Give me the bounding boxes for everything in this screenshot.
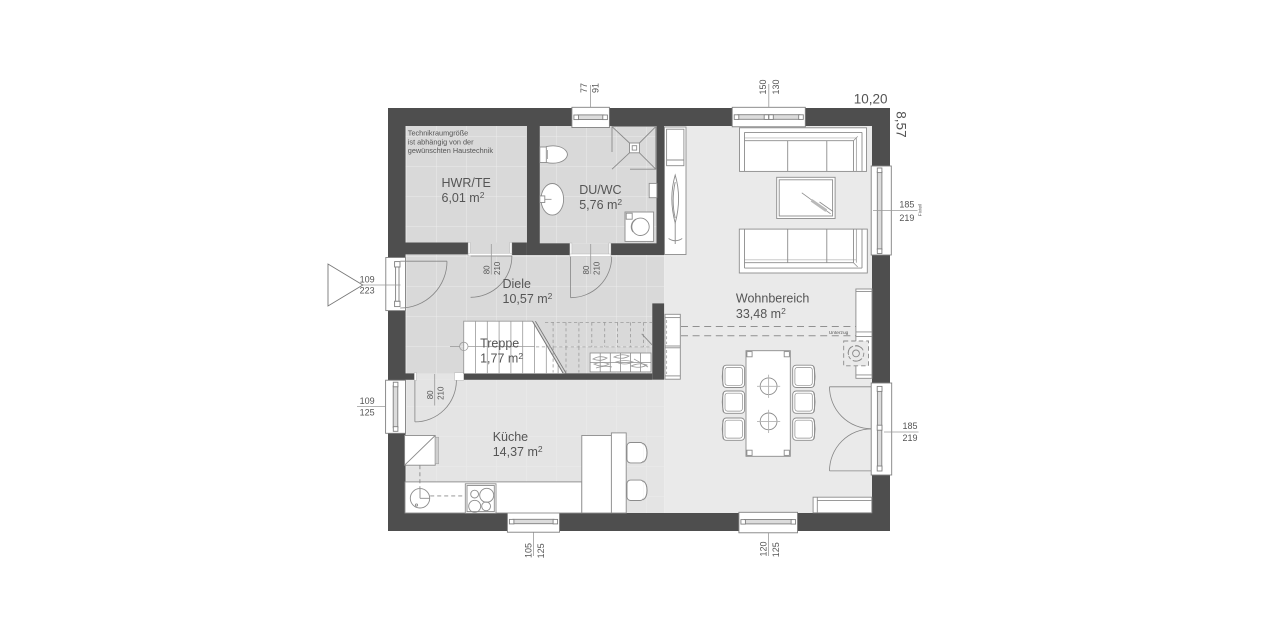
svg-text:130: 130 [771, 79, 781, 94]
svg-text:1,77 m2: 1,77 m2 [480, 351, 523, 366]
svg-text:105: 105 [523, 543, 533, 558]
svg-text:6,01 m2: 6,01 m2 [442, 190, 485, 205]
svg-text:91: 91 [590, 83, 600, 93]
svg-text:120: 120 [759, 541, 769, 556]
svg-text:33,48 m2: 33,48 m2 [736, 306, 786, 321]
svg-text:Unterzug: Unterzug [829, 330, 849, 336]
svg-text:210: 210 [493, 261, 502, 275]
svg-text:ist abhängig von der: ist abhängig von der [408, 137, 474, 146]
svg-text:125: 125 [771, 542, 781, 557]
svg-text:210: 210 [592, 261, 601, 275]
svg-text:Technikraumgröße: Technikraumgröße [408, 128, 468, 137]
svg-text:109: 109 [360, 396, 375, 406]
svg-text:Wohnbereich: Wohnbereich [736, 292, 809, 306]
svg-text:223: 223 [360, 286, 375, 296]
svg-text:HWR/TE: HWR/TE [442, 176, 491, 190]
svg-text:185: 185 [902, 421, 917, 431]
svg-text:Küche: Küche [493, 430, 528, 444]
svg-text:10,20: 10,20 [854, 92, 888, 107]
svg-text:Diele: Diele [503, 277, 532, 291]
svg-text:219: 219 [902, 433, 917, 443]
svg-text:80: 80 [582, 265, 591, 274]
svg-text:77: 77 [579, 83, 589, 93]
svg-text:14,37 m2: 14,37 m2 [493, 444, 543, 459]
svg-text:219: 219 [899, 213, 914, 223]
svg-text:185: 185 [899, 199, 914, 209]
svg-text:5,76 m2: 5,76 m2 [579, 197, 622, 212]
svg-text:DU/WC: DU/WC [579, 183, 621, 197]
svg-text:80: 80 [482, 265, 491, 274]
svg-text:125: 125 [360, 407, 375, 417]
svg-text:gewünschten Haustechnik: gewünschten Haustechnik [408, 146, 494, 155]
svg-text:150: 150 [758, 79, 768, 94]
svg-text:8,57: 8,57 [894, 111, 909, 137]
svg-text:125: 125 [536, 543, 546, 558]
svg-text:80: 80 [426, 390, 435, 399]
svg-text:210: 210 [436, 386, 445, 400]
svg-text:Fixteil: Fixteil [917, 204, 923, 217]
svg-text:Treppe: Treppe [480, 336, 519, 350]
svg-text:10,57 m2: 10,57 m2 [503, 291, 553, 306]
svg-text:109: 109 [360, 274, 375, 284]
